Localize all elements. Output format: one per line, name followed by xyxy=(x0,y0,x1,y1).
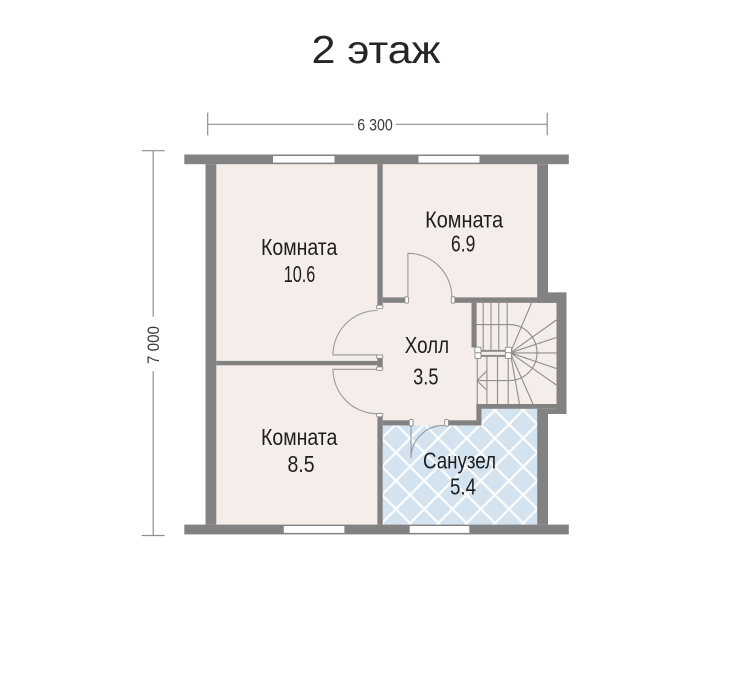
svg-text:6 300: 6 300 xyxy=(357,116,393,134)
svg-text:5.4: 5.4 xyxy=(450,474,476,500)
svg-text:Холл: Холл xyxy=(405,332,449,358)
svg-text:8.5: 8.5 xyxy=(287,451,314,477)
svg-text:10.6: 10.6 xyxy=(284,261,316,287)
svg-text:Комната: Комната xyxy=(261,424,338,450)
svg-text:Санузел: Санузел xyxy=(423,447,496,473)
svg-text:7 000: 7 000 xyxy=(145,326,163,364)
svg-text:6.9: 6.9 xyxy=(451,230,475,256)
svg-text:3.5: 3.5 xyxy=(413,364,438,390)
svg-text:2 этаж: 2 этаж xyxy=(312,29,441,72)
svg-text:Комната: Комната xyxy=(425,207,504,233)
svg-text:Комната: Комната xyxy=(261,234,338,260)
